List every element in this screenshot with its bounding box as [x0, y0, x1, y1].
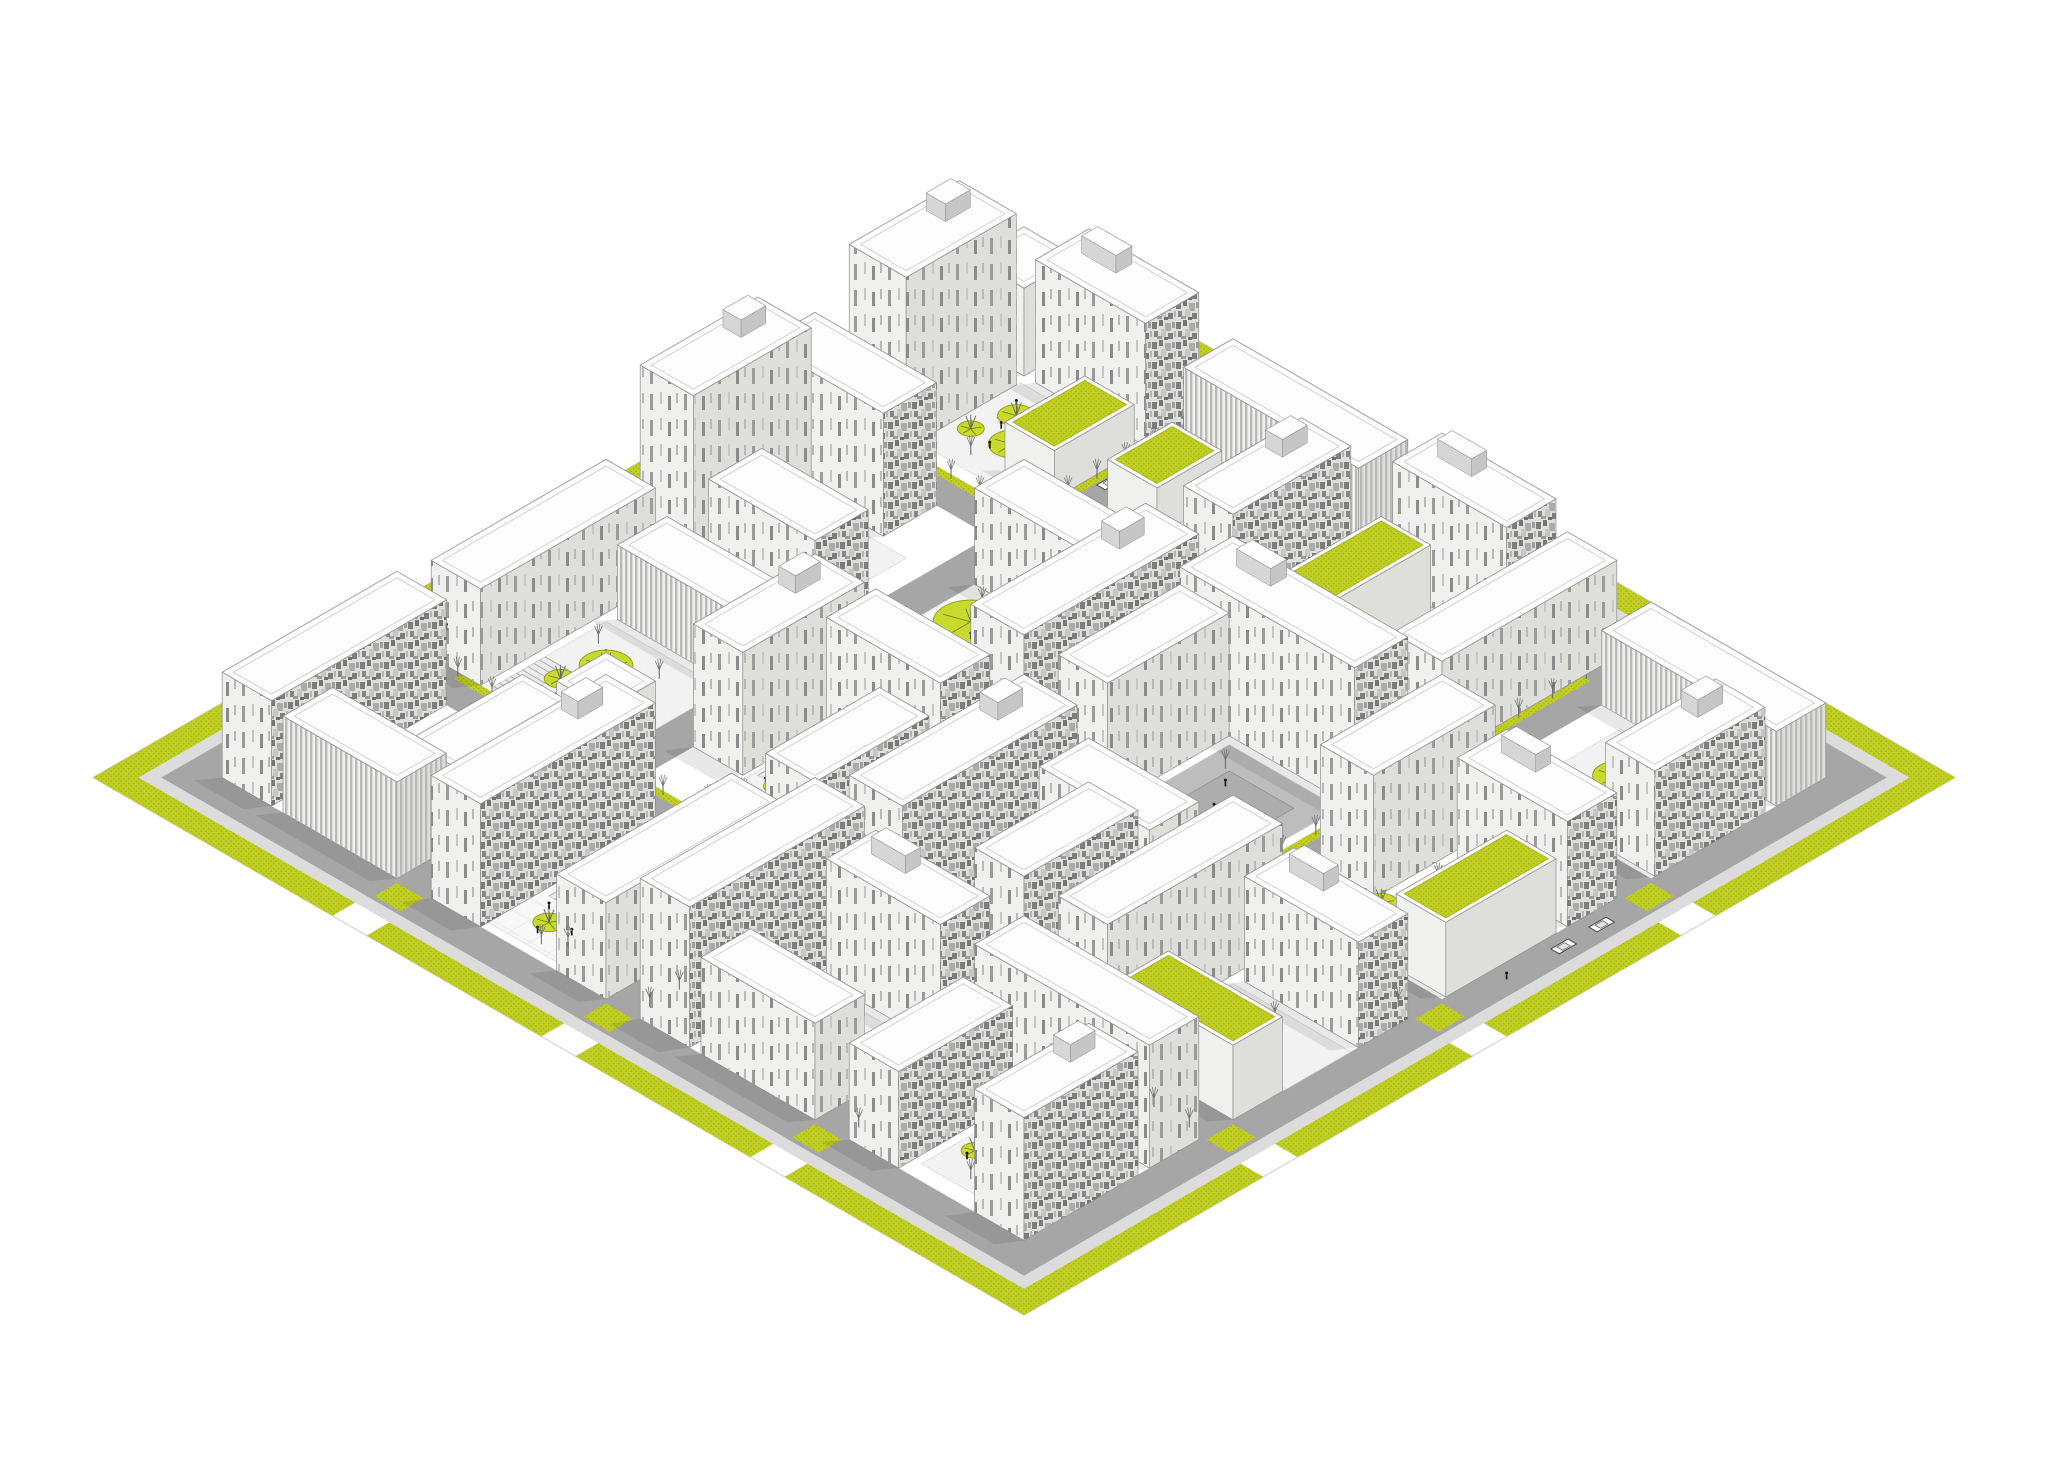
masterplan-canvas	[0, 0, 2048, 1467]
person-head	[548, 901, 551, 904]
person-head	[988, 441, 991, 444]
person-head	[1000, 421, 1003, 424]
person-head	[1224, 779, 1227, 782]
person-head	[1505, 972, 1508, 975]
building-left-facade-texture	[640, 878, 689, 1047]
masterplan-axonometric-drawing	[0, 0, 2048, 1467]
person-head	[966, 1152, 969, 1155]
